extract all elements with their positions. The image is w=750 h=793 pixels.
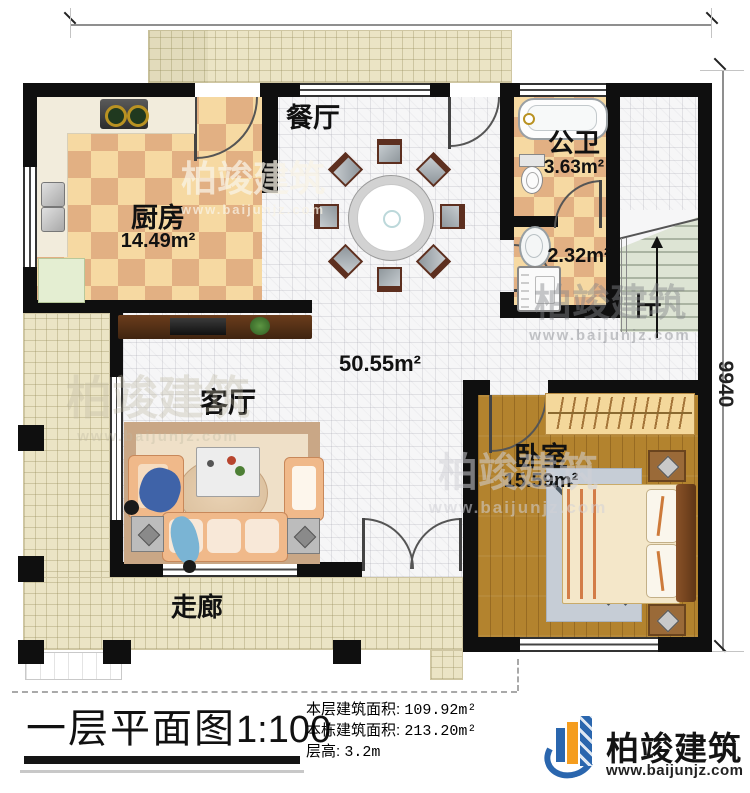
wall: [23, 83, 195, 97]
dining-chair: [377, 139, 402, 164]
side-table: [287, 518, 320, 554]
stove-icon: [100, 99, 148, 129]
living-label: 客厅: [186, 388, 270, 417]
stair-up-arrow: [651, 236, 663, 248]
entry-step: [430, 650, 463, 680]
logo-building-left: [556, 728, 565, 762]
plan-title: 一层平面图: [26, 696, 236, 754]
kitchen-cabinet: [38, 258, 85, 303]
stat-label: 本层建筑面积:: [306, 701, 400, 718]
boundary-dashed-line: [12, 691, 517, 693]
stat-value: 3.2m: [344, 744, 380, 761]
extension-line: [711, 8, 712, 38]
washer-controls: [521, 270, 529, 308]
wall: [262, 97, 278, 193]
wall: [297, 562, 362, 577]
area-stats: 本层建筑面积: 109.92m² 本栋建筑面积: 213.20m² 层高: 3.…: [306, 700, 516, 763]
wardrobe-rail: [548, 412, 692, 414]
bath-divider-door-leaf: [599, 180, 602, 228]
logo-building-right: [580, 716, 592, 766]
entrance-door-left-leaf: [362, 518, 365, 571]
pillow-stripe: [657, 496, 665, 536]
person-head: [183, 560, 196, 573]
wall: [606, 83, 712, 97]
extension-line: [70, 8, 71, 38]
washer-door: [535, 276, 555, 304]
stairs-up-label: 上: [633, 291, 660, 321]
sofa-cushion: [245, 519, 279, 553]
wardrobe: [545, 393, 695, 435]
wall: [606, 97, 620, 305]
floor-plan-canvas: 11940 9940 上: [0, 0, 750, 793]
brand-logo-icon: [544, 714, 602, 782]
person-head: [124, 500, 139, 515]
kitchen-window: [23, 167, 37, 267]
bed-blanket-stripes: [567, 489, 603, 599]
bedroom-door-leaf: [489, 395, 492, 453]
column: [18, 640, 44, 664]
armchair-cushion: [292, 466, 316, 510]
faucet-icon: [523, 113, 535, 125]
coffee-table: [196, 447, 260, 497]
corridor-floor: [23, 577, 463, 650]
stat-row: 本层建筑面积: 109.92m²: [306, 700, 516, 721]
bedroom-label: 卧室: [499, 443, 583, 471]
sofa-cushion: [207, 519, 241, 553]
wall: [260, 83, 300, 97]
stat-value: 213.20m²: [404, 723, 476, 740]
nightstand: [648, 450, 686, 482]
bath-label: 公卫: [538, 130, 610, 157]
terrace-door-leaf: [448, 97, 451, 149]
hall-area: 50.55m²: [338, 352, 422, 375]
wall: [463, 395, 478, 652]
stove-burner: [127, 105, 149, 127]
flower-decor: [235, 466, 245, 476]
corridor-label: 走廊: [164, 594, 230, 621]
stove-burner: [105, 105, 127, 127]
stat-label: 层高:: [306, 743, 340, 760]
wash-area: 2.32m²: [540, 246, 618, 267]
logo-building-mid: [567, 722, 578, 764]
column: [103, 640, 131, 664]
pillow-stripe: [657, 551, 665, 591]
right-outer-wall: [698, 83, 712, 652]
dining-window: [300, 83, 430, 97]
stat-row: 层高: 3.2m: [306, 742, 516, 763]
stat-value: 109.92m²: [404, 702, 476, 719]
dining-chair: [377, 267, 402, 292]
stat-label: 本栋建筑面积:: [306, 722, 400, 739]
kitchen-area: 14.49m²: [116, 231, 200, 252]
pillow: [646, 544, 678, 598]
living-window: [110, 377, 123, 520]
kitchen-label: 厨房: [116, 204, 200, 232]
bedroom-area: 15.59m²: [498, 471, 584, 492]
nightstand: [648, 604, 686, 636]
dim-tick: [714, 58, 727, 71]
dining-chair: [314, 204, 339, 229]
stat-row: 本栋建筑面积: 213.20m²: [306, 721, 516, 742]
title-underline-light: [20, 770, 304, 773]
wall: [500, 292, 514, 305]
entrance-door-right-leaf: [459, 518, 462, 571]
pillow: [646, 489, 678, 543]
dim-tick: [706, 12, 719, 25]
top-dimension-line: [70, 24, 712, 26]
wall: [110, 562, 163, 577]
dining-chair: [440, 204, 465, 229]
right-dimension-label: 9940: [713, 354, 737, 414]
wall: [430, 83, 450, 97]
title-underline: [24, 756, 300, 764]
terrace-shade: [148, 30, 208, 83]
tv-icon: [170, 318, 226, 335]
column: [18, 556, 44, 582]
column: [18, 425, 44, 451]
column: [333, 640, 361, 664]
washer-icon: [517, 266, 561, 312]
dining-table: [348, 175, 434, 261]
wall: [23, 97, 37, 167]
plan-title-row: 一层平面图 1:100: [26, 696, 331, 754]
armchair-right: [284, 457, 324, 521]
dining-table-center: [383, 210, 401, 228]
flower-decor: [227, 456, 236, 465]
wall: [658, 637, 712, 652]
sink-basin: [41, 207, 65, 232]
headboard: [676, 484, 696, 602]
sink-basin: [41, 182, 65, 207]
dining-label: 餐厅: [281, 104, 345, 132]
plant-icon: [250, 317, 270, 335]
wall: [463, 637, 520, 652]
stair-rail: [621, 238, 627, 332]
brand-site: www.baijunjz.com: [606, 762, 750, 779]
bath-area: 3.63m²: [536, 158, 612, 178]
boundary-dashed-line: [517, 659, 519, 691]
tv-cabinet: [118, 315, 312, 339]
wall: [463, 380, 490, 395]
wall: [500, 83, 520, 97]
bedroom-window: [520, 637, 658, 652]
side-table: [131, 516, 164, 552]
extension-line: [700, 70, 744, 71]
table-decor: [207, 460, 214, 467]
wall: [500, 97, 514, 240]
bathroom-window: [520, 83, 606, 97]
